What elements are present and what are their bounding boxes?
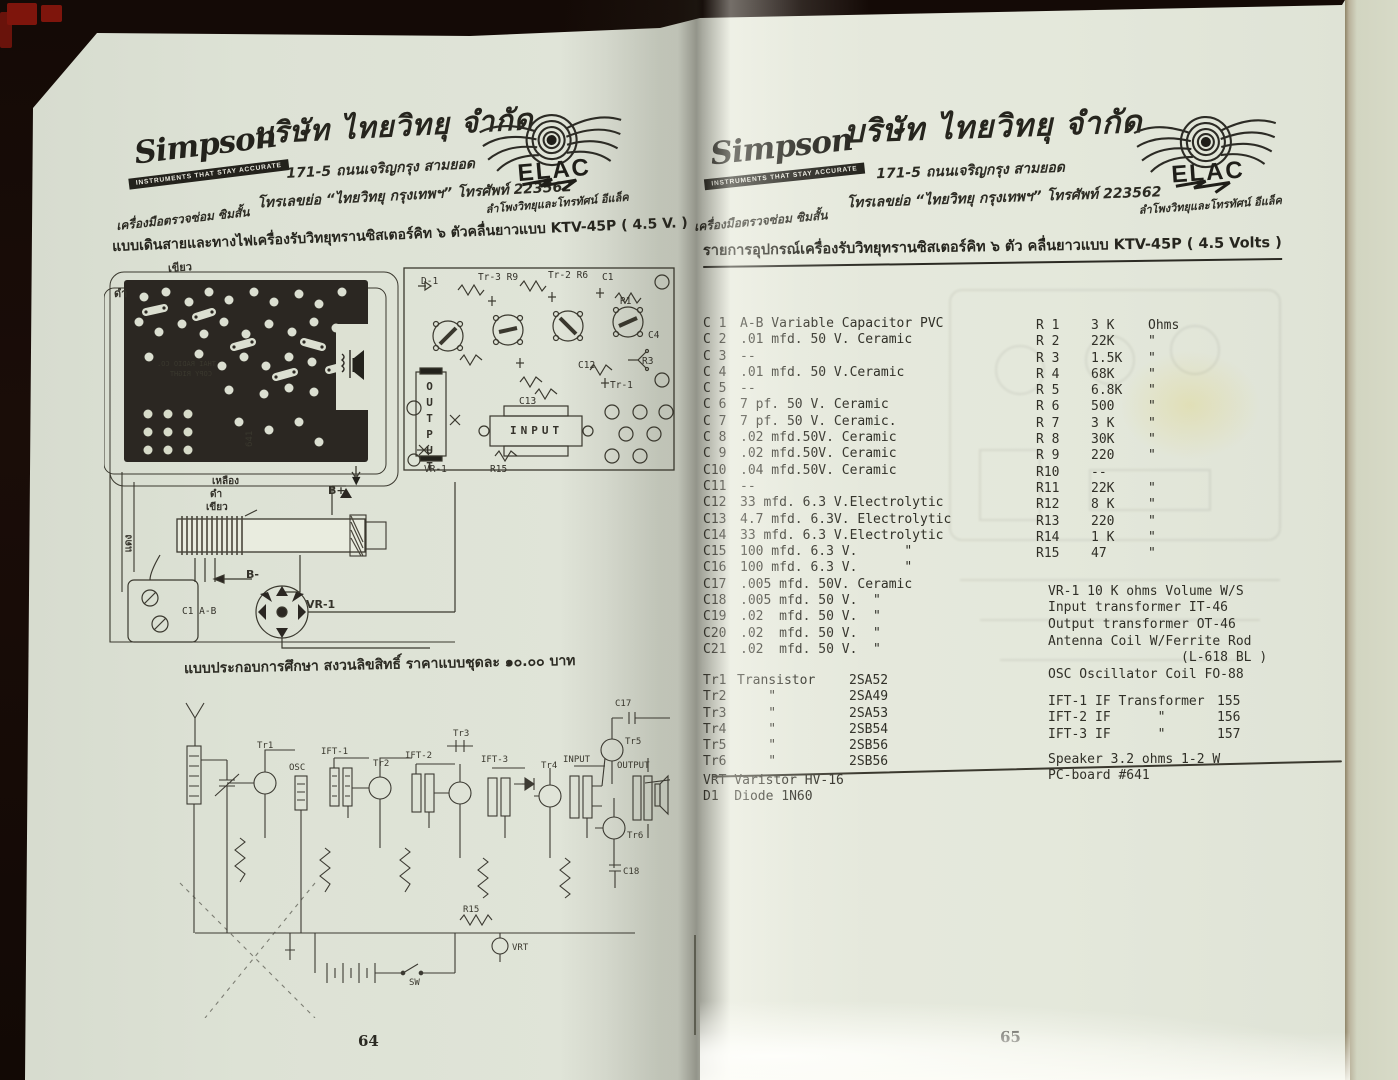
layout-label-c1: C1 bbox=[602, 272, 613, 283]
part-ref: Tr1 bbox=[703, 673, 737, 689]
layout-label-tr1: Tr-1 bbox=[610, 380, 633, 391]
part-ref: R12 bbox=[1036, 497, 1091, 513]
schematic-label-r15: R15 bbox=[463, 905, 479, 915]
vr1-label: VR-1 bbox=[306, 598, 335, 611]
part-desc: -- bbox=[740, 381, 756, 396]
capacitor-row: C 77 pf. 50 V. Ceramic. bbox=[703, 414, 951, 430]
antenna-wiring-diagram bbox=[100, 472, 460, 652]
schematic-label-tr4: Tr4 bbox=[541, 761, 557, 771]
wire-label-black: ดำ bbox=[114, 284, 127, 302]
schematic-label-ift1: IFT-1 bbox=[321, 747, 348, 757]
elac-emblem: ELAC bbox=[473, 94, 630, 199]
capacitor-row: C1233 mfd. 6.3 V.Electrolytic bbox=[703, 495, 951, 511]
part-number: 2SA52 bbox=[849, 673, 888, 688]
resistor-row: R 830K" bbox=[1036, 432, 1179, 448]
part-ref: C 8 bbox=[703, 430, 740, 446]
part-ref: R 1 bbox=[1036, 318, 1091, 334]
page-number-left: 64 bbox=[358, 1032, 379, 1050]
elac-logo-text: ELAC bbox=[1170, 156, 1245, 188]
schematic-label-sw: SW bbox=[409, 978, 420, 988]
resistor-row: R 31.5K" bbox=[1036, 351, 1179, 367]
schematic-label-c17: C17 bbox=[615, 699, 631, 709]
wire-label-green: เขียว bbox=[167, 257, 192, 277]
misc-part-list: VRT Varistor HV-16D1 Diode 1N60 bbox=[703, 716, 844, 806]
schematic-label-ift2: IFT-2 bbox=[405, 751, 432, 761]
resistor-row: R128 K" bbox=[1036, 497, 1179, 513]
company-address: 171-5 ถนนเจริญกรุง สามยอด bbox=[845, 156, 1096, 187]
part-number: 155 bbox=[1217, 694, 1240, 709]
part-ref: R11 bbox=[1036, 481, 1091, 497]
layout-label-d1: D-1 bbox=[421, 276, 438, 287]
part-number: 2SA53 bbox=[849, 706, 888, 721]
capacitor-row: C16100 mfd. 6.3 V. " bbox=[703, 560, 951, 576]
layout-label-r15: R15 bbox=[490, 464, 507, 475]
layout-label-r1: R1 bbox=[620, 296, 631, 307]
resistor-row: R10-- bbox=[1036, 465, 1179, 481]
resistor-row: R 73 K" bbox=[1036, 416, 1179, 432]
schematic-label-vrt: VRT bbox=[512, 943, 529, 953]
part-value: 22K bbox=[1091, 334, 1148, 350]
part-ref: C15 bbox=[703, 544, 740, 560]
part-value: 1.5K bbox=[1091, 351, 1148, 367]
resistor-row: R 468K" bbox=[1036, 367, 1179, 383]
part-ref: C13 bbox=[703, 512, 740, 528]
part-desc: -- bbox=[740, 349, 756, 364]
schematic-label-tr3: Tr3 bbox=[453, 729, 469, 739]
gutter-crease bbox=[694, 935, 696, 1035]
circuit-schematic: Tr1 OSC IFT-1 Tr2 IFT-2 Tr3 IFT-3 Tr4 IN… bbox=[165, 688, 670, 1018]
capacitor-row: C 1A-B Variable Capacitor PVC bbox=[703, 316, 951, 332]
capacitor-row: C 8.02 mfd.50V. Ceramic bbox=[703, 430, 951, 446]
resistor-row: R 6500" bbox=[1036, 399, 1179, 415]
part-number: 2SB56 bbox=[849, 754, 888, 769]
schematic-label-osc: OSC bbox=[289, 763, 305, 773]
part-ref: R 8 bbox=[1036, 432, 1091, 448]
part-desc: .01 mfd. 50 V.Ceramic bbox=[740, 365, 904, 380]
part-desc: 33 mfd. 6.3 V.Electrolytic bbox=[740, 528, 944, 543]
capacitor-row: C18.005 mfd. 50 V. " bbox=[703, 593, 951, 609]
part-ref: C14 bbox=[703, 528, 740, 544]
part-type: Transistor bbox=[737, 673, 849, 689]
board-copyright-line1: THAI RADIO CO. bbox=[157, 360, 216, 368]
part-ref: C17 bbox=[703, 577, 740, 593]
part-ref: C 9 bbox=[703, 446, 740, 462]
resistor-row: R 222K" bbox=[1036, 334, 1179, 350]
part-number: 2SB56 bbox=[849, 738, 888, 753]
schematic-label-input: INPUT bbox=[563, 755, 591, 765]
part-value: 3 K bbox=[1091, 318, 1148, 334]
company-title: บริษัท ไทยวิทยุ จำกัด bbox=[843, 98, 1095, 157]
capacitor-row: C1433 mfd. 6.3 V.Electrolytic bbox=[703, 528, 951, 544]
part-unit: Ohms bbox=[1148, 318, 1179, 333]
part-value: 68K bbox=[1091, 367, 1148, 383]
part-unit: " bbox=[1148, 399, 1156, 414]
part-ref: C12 bbox=[703, 495, 740, 511]
schematic-label-tr6: Tr6 bbox=[627, 831, 643, 841]
elac-emblem: ELAC bbox=[1128, 97, 1284, 199]
part-number: 156 bbox=[1217, 710, 1240, 725]
part-unit: " bbox=[1148, 351, 1156, 366]
book-photo: Simpson INSTRUMENTS THAT STAY ACCURATE เ… bbox=[0, 0, 1398, 1080]
part-desc: .005 mfd. 50 V. " bbox=[740, 593, 881, 608]
transistor-row: Tr2 "2SA49 bbox=[703, 689, 888, 705]
wire-label-red: แดง bbox=[121, 535, 136, 553]
part-desc: -- bbox=[740, 479, 756, 494]
part-ref: R 2 bbox=[1036, 334, 1091, 350]
part-unit: " bbox=[1148, 448, 1156, 463]
part-unit: " bbox=[1148, 497, 1156, 512]
board-copyright-line2: COPY RIGHT bbox=[169, 370, 212, 378]
part-desc: .01 mfd. 50 V. Ceramic bbox=[740, 332, 912, 347]
part-ref: C11 bbox=[703, 479, 740, 495]
schematic-label-c18: C18 bbox=[623, 867, 639, 877]
component-layout-diagram bbox=[400, 260, 680, 478]
part-ref: R 9 bbox=[1036, 448, 1091, 464]
part-ref: R 6 bbox=[1036, 399, 1091, 415]
c1ab-label: C1 A-B bbox=[182, 606, 216, 617]
capacitor-row: C10.04 mfd.50V. Ceramic bbox=[703, 463, 951, 479]
part-number: 157 bbox=[1217, 727, 1240, 742]
capacitor-row: C 9.02 mfd.50V. Ceramic bbox=[703, 446, 951, 462]
part-unit: " bbox=[1148, 481, 1156, 496]
part-desc: 7 pf. 50 V. Ceramic bbox=[740, 397, 889, 412]
capacitor-row: C 5-- bbox=[703, 381, 951, 397]
part-ref: C10 bbox=[703, 463, 740, 479]
capacitor-row: C11-- bbox=[703, 479, 951, 495]
elac-logo-right: ELAC ลำโพงวิทยุและโทรทัศน์ อีแล็ค bbox=[1128, 97, 1285, 219]
resistor-list: R 13 KOhmsR 222K"R 31.5K"R 468K"R 56.8K"… bbox=[1036, 261, 1179, 562]
company-header: บริษัท ไทยวิทยุ จำกัด 171-5 ถนนเจริญกรุง… bbox=[252, 98, 507, 215]
part-value: 220 bbox=[1091, 448, 1148, 464]
part-desc: .02 mfd.50V. Ceramic bbox=[740, 430, 897, 445]
part-ref: R 5 bbox=[1036, 383, 1091, 399]
part-ref: R10 bbox=[1036, 465, 1091, 481]
part-value: 22K bbox=[1091, 481, 1148, 497]
part-ref: R 7 bbox=[1036, 416, 1091, 432]
part-desc: 33 mfd. 6.3 V.Electrolytic bbox=[740, 495, 944, 510]
part-value: 3 K bbox=[1091, 416, 1148, 432]
transistor-row: Tr1Transistor2SA52 bbox=[703, 673, 888, 689]
capacitor-row: C 67 pf. 50 V. Ceramic bbox=[703, 397, 951, 413]
part-type: " bbox=[737, 689, 849, 705]
schematic-label-ift3: IFT-3 bbox=[481, 755, 508, 765]
part-ref: R 3 bbox=[1036, 351, 1091, 367]
part-value: -- bbox=[1091, 465, 1148, 481]
part-desc: A-B Variable Capacitor PVC bbox=[740, 316, 944, 331]
capacitor-row: C134.7 mfd. 6.3V. Electrolytic bbox=[703, 512, 951, 528]
part-desc: .04 mfd.50V. Ceramic bbox=[740, 463, 897, 478]
part-ref: R 4 bbox=[1036, 367, 1091, 383]
page-number-right: 65 bbox=[1000, 1028, 1021, 1046]
part-ref: C 1 bbox=[703, 316, 740, 332]
board-number: 641 bbox=[245, 431, 255, 447]
part-value: 8 K bbox=[1091, 497, 1148, 513]
part-number: 2SA49 bbox=[849, 689, 888, 704]
capacitor-list: C 1A-B Variable Capacitor PVCC 2.01 mfd.… bbox=[703, 259, 951, 658]
pcb-copper-diagram: THAI RADIO CO. COPY RIGHT 641 bbox=[104, 262, 404, 494]
resistor-row: R 13 KOhms bbox=[1036, 318, 1179, 334]
output-part-row: PC-board #641 bbox=[1048, 768, 1220, 784]
part-ref: C 6 bbox=[703, 397, 740, 413]
part-ref: C 4 bbox=[703, 365, 740, 381]
part-value: 30K bbox=[1091, 432, 1148, 448]
resistor-row: R 56.8K" bbox=[1036, 383, 1179, 399]
elac-logo: ELAC ลำโพงวิทยุและโทรทัศน์ อีแล็ค bbox=[473, 94, 632, 219]
layout-label-tr3: Tr-3 R9 bbox=[478, 272, 518, 283]
resistor-row: R 9220" bbox=[1036, 448, 1179, 464]
part-desc: 100 mfd. 6.3 V. " bbox=[740, 560, 912, 575]
layout-label-c13: C13 bbox=[519, 396, 536, 407]
b-minus-label: B- bbox=[246, 568, 259, 581]
schematic-label-tr2: Tr2 bbox=[373, 759, 389, 769]
capacitor-row: C17.005 mfd. 50V. Ceramic bbox=[703, 577, 951, 593]
output-part-list: Speaker 3.2 ohms 1-2 WPC-board #641 bbox=[1048, 695, 1220, 785]
layout-label-output: OUTPUT bbox=[423, 380, 436, 466]
part-unit: " bbox=[1148, 432, 1156, 447]
part-ref: Tr2 bbox=[703, 689, 737, 705]
part-unit: " bbox=[1148, 383, 1156, 398]
schematic-label-tr5: Tr5 bbox=[625, 737, 641, 747]
part-ref: C18 bbox=[703, 593, 740, 609]
part-ref: C 5 bbox=[703, 381, 740, 397]
company-header-right: บริษัท ไทยวิทยุ จำกัด 171-5 ถนนเจริญกรุง… bbox=[843, 98, 1097, 215]
part-desc: 7 pf. 50 V. Ceramic. bbox=[740, 414, 897, 429]
layout-label-r3: R3 bbox=[642, 356, 653, 367]
part-value: 6.8K bbox=[1091, 383, 1148, 399]
capacitor-row: C15100 mfd. 6.3 V. " bbox=[703, 544, 951, 560]
cover-red-mark bbox=[41, 5, 62, 22]
layout-label-c12: C12 bbox=[578, 360, 595, 371]
resistor-row: R1122K" bbox=[1036, 481, 1179, 497]
part-ref: C 2 bbox=[703, 332, 740, 348]
capacitor-row: C 2.01 mfd. 50 V. Ceramic bbox=[703, 332, 951, 348]
part-unit: " bbox=[1148, 334, 1156, 349]
layout-label-tr2: Tr-2 R6 bbox=[548, 270, 588, 281]
part-value: 500 bbox=[1091, 399, 1148, 415]
cover-red-mark bbox=[0, 12, 12, 48]
capacitor-row: C 4.01 mfd. 50 V.Ceramic bbox=[703, 365, 951, 381]
layout-label-c4: C4 bbox=[648, 330, 659, 341]
part-ref: C 3 bbox=[703, 349, 740, 365]
misc-part-row: D1 Diode 1N60 bbox=[703, 789, 844, 805]
part-unit: " bbox=[1148, 367, 1156, 382]
wire-label-green2: เขียว bbox=[206, 500, 228, 515]
part-desc: 4.7 mfd. 6.3V. Electrolytic bbox=[740, 512, 951, 527]
part-desc: 100 mfd. 6.3 V. " bbox=[740, 544, 912, 559]
elac-logo-text: ELAC bbox=[517, 154, 592, 187]
part-unit: " bbox=[1148, 416, 1156, 431]
part-desc: .02 mfd.50V. Ceramic bbox=[740, 446, 897, 461]
part-number: 2SB54 bbox=[849, 722, 888, 737]
part-ref: C16 bbox=[703, 560, 740, 576]
layout-label-input: INPUT bbox=[510, 424, 563, 437]
schematic-label-tr1: Tr1 bbox=[257, 741, 273, 751]
schematic-label-output: OUTPUT bbox=[617, 761, 650, 771]
part-desc: .005 mfd. 50V. Ceramic bbox=[740, 577, 912, 592]
part-ref: C 7 bbox=[703, 414, 740, 430]
capacitor-row: C 3-- bbox=[703, 349, 951, 365]
page-stack-edge bbox=[1345, 0, 1398, 1080]
